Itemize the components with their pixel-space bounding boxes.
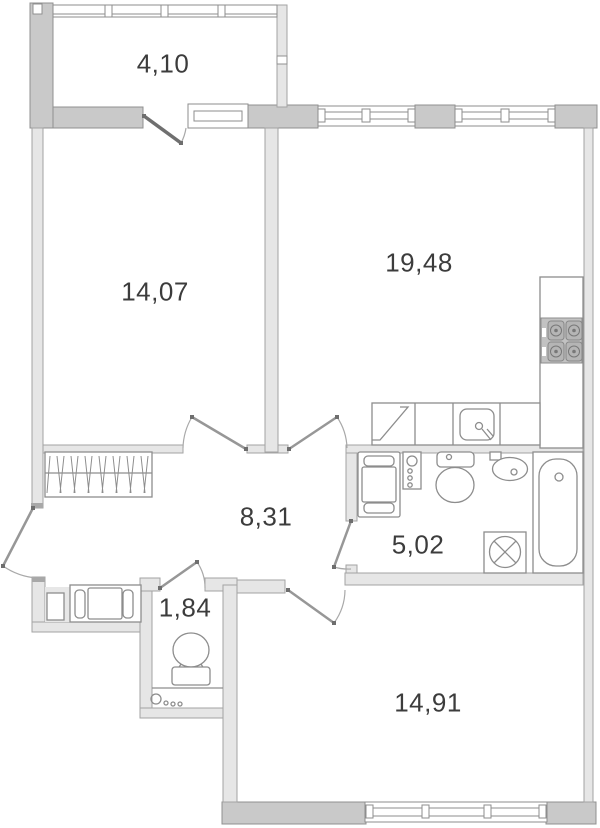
kitchen-fixtures [372, 277, 583, 448]
wall-left-upper [32, 128, 43, 508]
bathtub-icon [533, 452, 583, 573]
wall-bath-bottom [345, 573, 583, 585]
wall-bath-left-upper [346, 453, 357, 521]
wall-bottom-right [546, 802, 596, 824]
wc-fixtures [151, 633, 223, 706]
washbasin-icon [490, 452, 528, 481]
kitchen-sink-icon [460, 409, 494, 440]
wall-bedroom2-top [237, 580, 285, 593]
small-sink-icon [151, 694, 182, 706]
wall-bench-bottom [32, 622, 143, 632]
wall-bottom-left [222, 802, 366, 824]
wall-wc-left [140, 578, 152, 718]
room-area-label-bathroom: 5,02 [392, 530, 445, 561]
wall-junction-notch [33, 4, 42, 14]
bedroom1-door-icon [183, 415, 248, 451]
doors [1, 114, 353, 625]
balcony-window-mullion [218, 5, 225, 17]
room-area-label-bedroom-1: 14,07 [121, 277, 189, 308]
hallway-furniture [45, 452, 152, 622]
switch-panel-icon [403, 452, 421, 489]
wall-balcony-bottom [53, 107, 143, 128]
wall-center [265, 128, 278, 452]
wall-wc-top-left [140, 578, 160, 591]
washing-machine-icon [484, 532, 526, 573]
wall-pier-b [415, 105, 455, 128]
balcony-column-tick [277, 56, 287, 64]
towel-radiator-icon [358, 452, 400, 517]
wall-pier-a [248, 105, 318, 128]
wc-door-icon [158, 560, 205, 590]
room-area-label-balcony: 4,10 [137, 49, 190, 80]
room-area-label-hallway: 8,31 [240, 502, 293, 533]
room-area-label-wc: 1,84 [159, 593, 212, 624]
bathroom-door-icon [332, 519, 353, 569]
room-area-label-living-kitchen: 19,48 [385, 248, 453, 279]
toilet-icon-bathroom [436, 452, 474, 503]
entrance-door-icon [1, 506, 37, 578]
floor-plan: 4,10 14,07 19,48 8,31 5,02 1,84 14,91 [0, 0, 600, 828]
wardrobe-icon [45, 452, 152, 497]
bedroom1-balcony-window-inner [194, 111, 242, 121]
toilet-icon-wc [172, 633, 210, 685]
bedroom2-window [365, 802, 547, 822]
wall-wc-bottom [140, 708, 223, 718]
living-door-icon [287, 415, 347, 451]
wall-corner-topright [555, 105, 597, 128]
kitchen-counter-bottom [372, 403, 540, 445]
balcony-window-mullion [161, 5, 168, 17]
wall-balcony-left [30, 3, 53, 128]
room-area-label-bedroom-2: 14,91 [394, 688, 462, 719]
balcony-window-mullion [105, 5, 112, 17]
bedroom2-door-icon [286, 588, 345, 625]
wall-bedroom2-left [223, 585, 237, 802]
wall-right [584, 128, 593, 802]
stove-icon [541, 318, 582, 363]
floor-plan-drawing [0, 0, 600, 828]
balcony-door-icon [142, 114, 186, 145]
